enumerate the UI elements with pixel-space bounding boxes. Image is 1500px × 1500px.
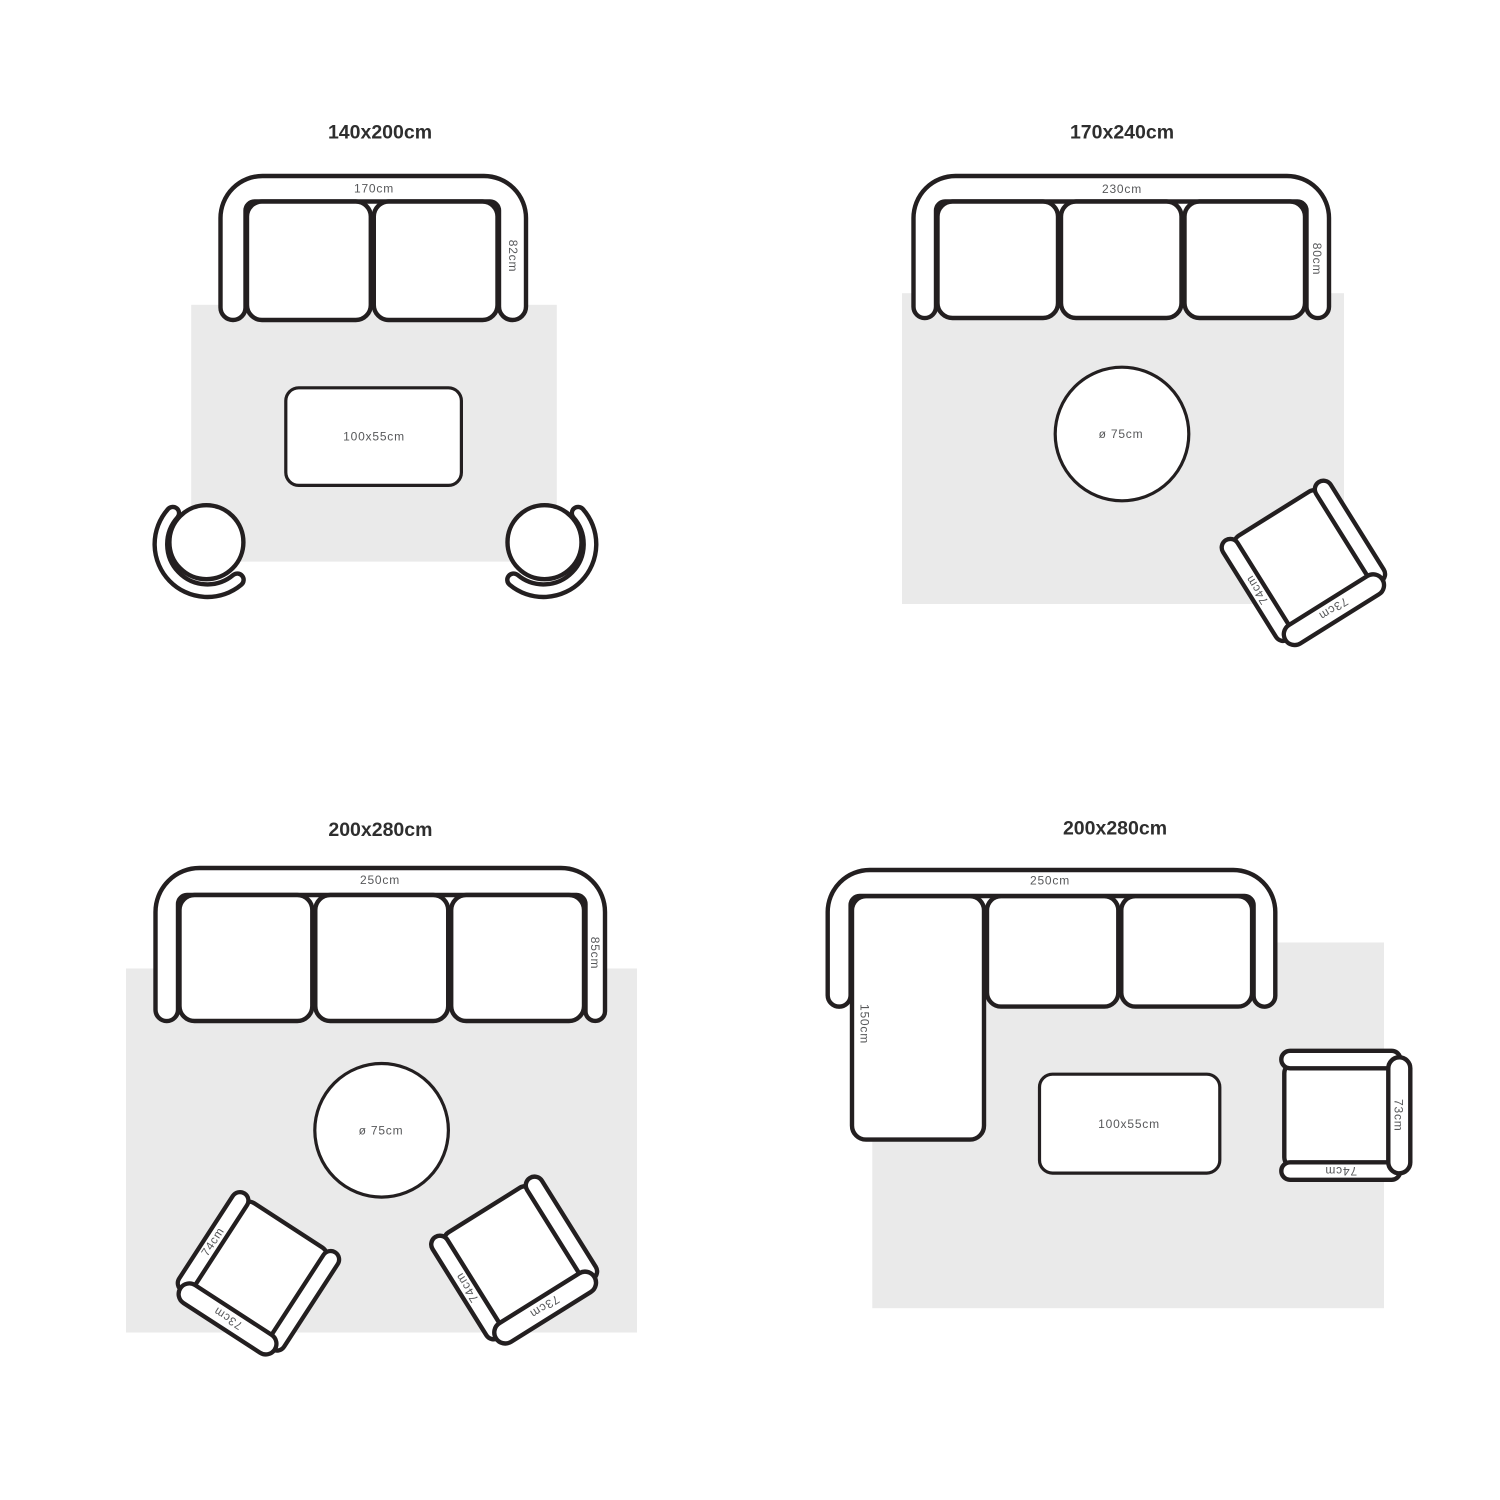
svg-text:200x280cm: 200x280cm <box>1063 818 1167 840</box>
svg-text:140x200cm: 140x200cm <box>328 122 432 144</box>
svg-text:200x280cm: 200x280cm <box>328 819 432 841</box>
svg-text:230cm: 230cm <box>1102 182 1142 196</box>
svg-text:250cm: 250cm <box>1030 874 1070 888</box>
svg-text:170x240cm: 170x240cm <box>1070 122 1174 144</box>
svg-text:ø 75cm: ø 75cm <box>1099 427 1144 441</box>
svg-text:100x55cm: 100x55cm <box>1098 1117 1160 1131</box>
svg-text:170cm: 170cm <box>354 182 394 196</box>
svg-text:150cm: 150cm <box>858 1004 872 1044</box>
svg-text:73cm: 73cm <box>1391 1099 1405 1132</box>
svg-text:250cm: 250cm <box>360 873 400 887</box>
svg-text:ø 75cm: ø 75cm <box>359 1123 404 1137</box>
svg-text:85cm: 85cm <box>588 937 602 970</box>
svg-text:74cm: 74cm <box>1325 1164 1358 1178</box>
svg-text:100x55cm: 100x55cm <box>343 430 405 444</box>
svg-text:82cm: 82cm <box>506 240 520 273</box>
svg-text:80cm: 80cm <box>1310 243 1324 276</box>
